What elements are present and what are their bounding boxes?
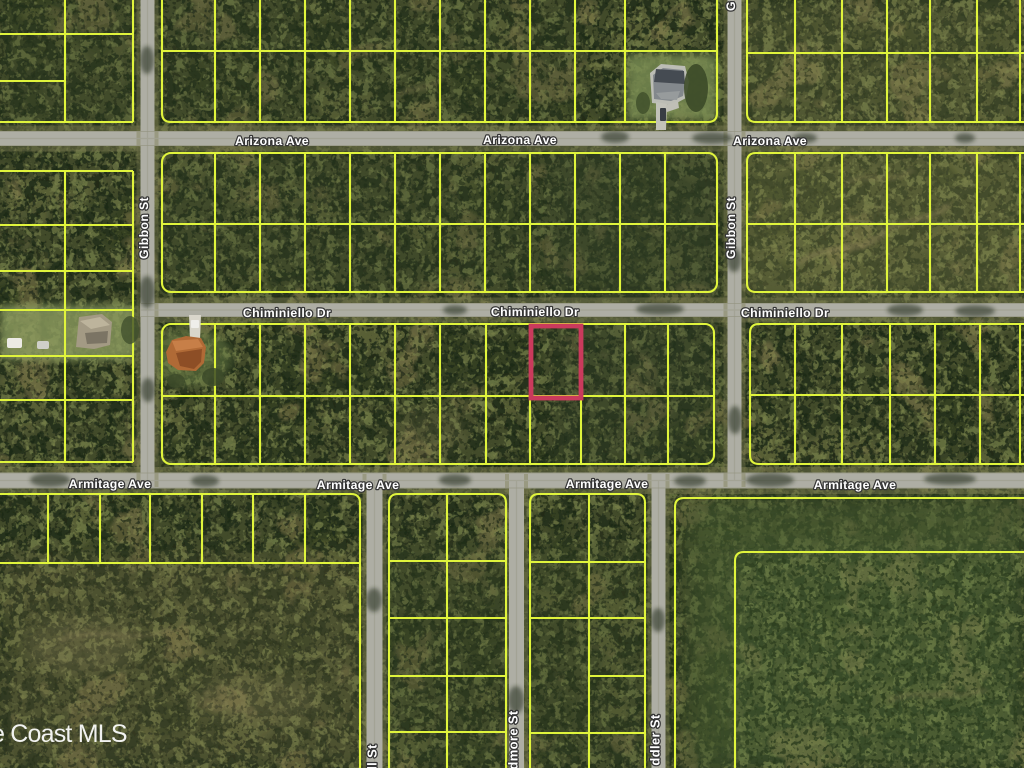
svg-text:e Coast MLS: e Coast MLS [0, 720, 127, 748]
svg-text:Armitage Ave: Armitage Ave [317, 478, 400, 492]
svg-text:ddler St: ddler St [648, 714, 663, 766]
svg-text:Chiminiello Dr: Chiminiello Dr [243, 306, 331, 320]
svg-text:Gibbon St: Gibbon St [137, 197, 151, 259]
svg-text:Armitage Ave: Armitage Ave [69, 477, 152, 491]
svg-text:Arizona Ave: Arizona Ave [235, 134, 309, 148]
svg-text:Armitage Ave: Armitage Ave [814, 478, 897, 492]
svg-text:G: G [724, 1, 738, 11]
svg-text:dmore St: dmore St [506, 710, 521, 768]
svg-text:Gibbon St: Gibbon St [724, 197, 738, 259]
svg-text:Chiminiello Dr: Chiminiello Dr [491, 305, 579, 319]
svg-text:Armitage Ave: Armitage Ave [566, 477, 649, 491]
svg-text:Chiminiello Dr: Chiminiello Dr [741, 306, 829, 320]
svg-text:Arizona Ave: Arizona Ave [733, 134, 807, 148]
svg-text:Arizona Ave: Arizona Ave [483, 133, 557, 147]
svg-text:ll St: ll St [365, 744, 380, 768]
